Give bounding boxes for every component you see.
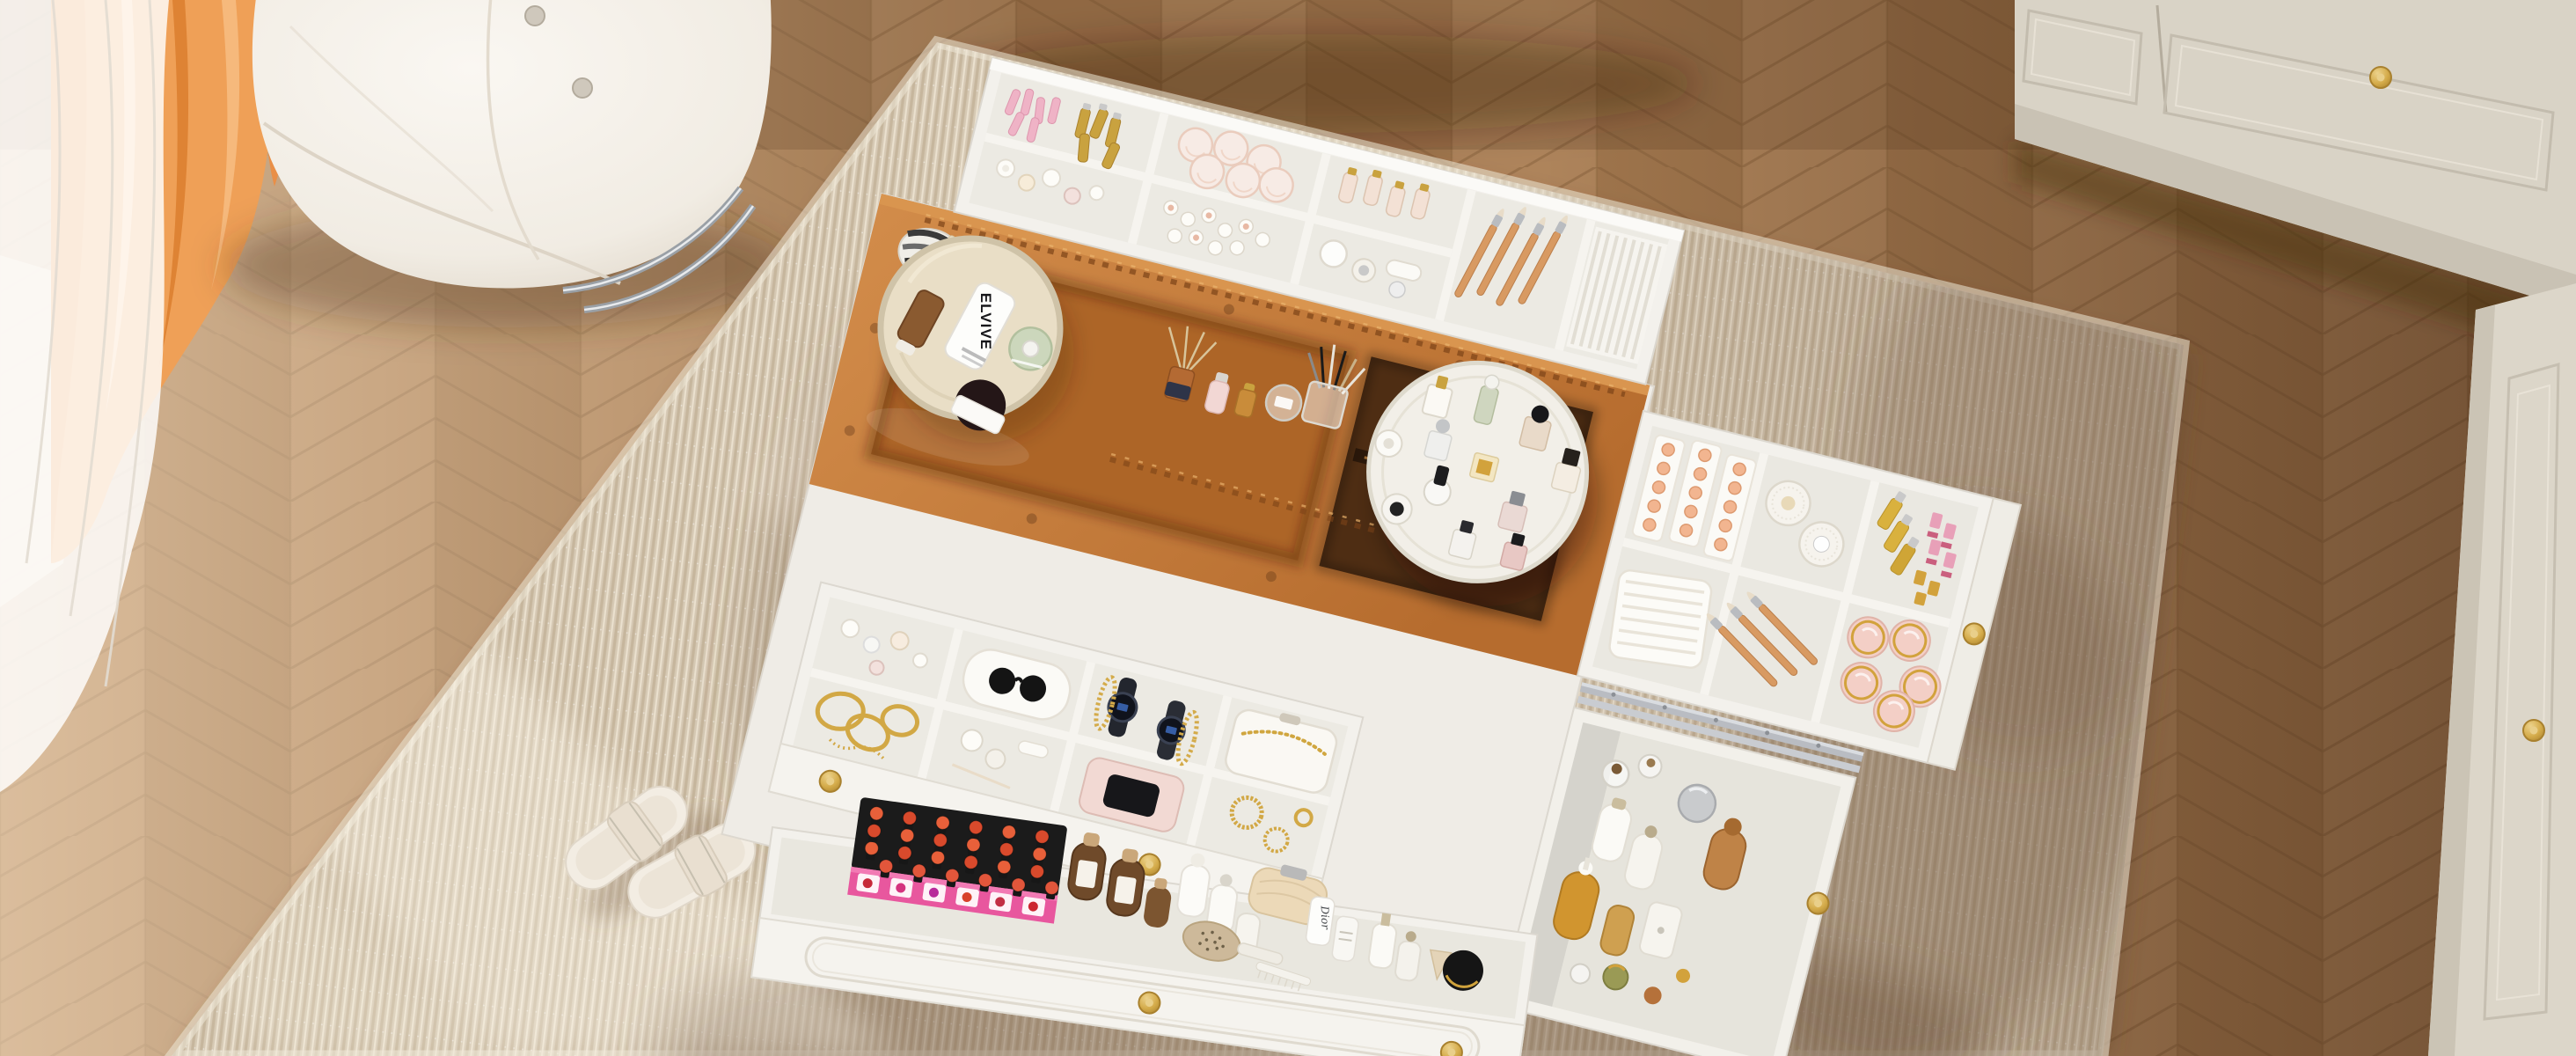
brass-knob-icon	[2370, 67, 2391, 88]
elvive-label: ELVIVE	[977, 293, 994, 350]
dior-label: Dior	[1319, 905, 1332, 930]
brass-knob-icon	[2523, 720, 2544, 741]
cotton-pads	[1608, 569, 1713, 670]
screenshot-root: ELVIVE	[0, 0, 2576, 1056]
room-photo: ELVIVE	[0, 0, 2576, 1056]
